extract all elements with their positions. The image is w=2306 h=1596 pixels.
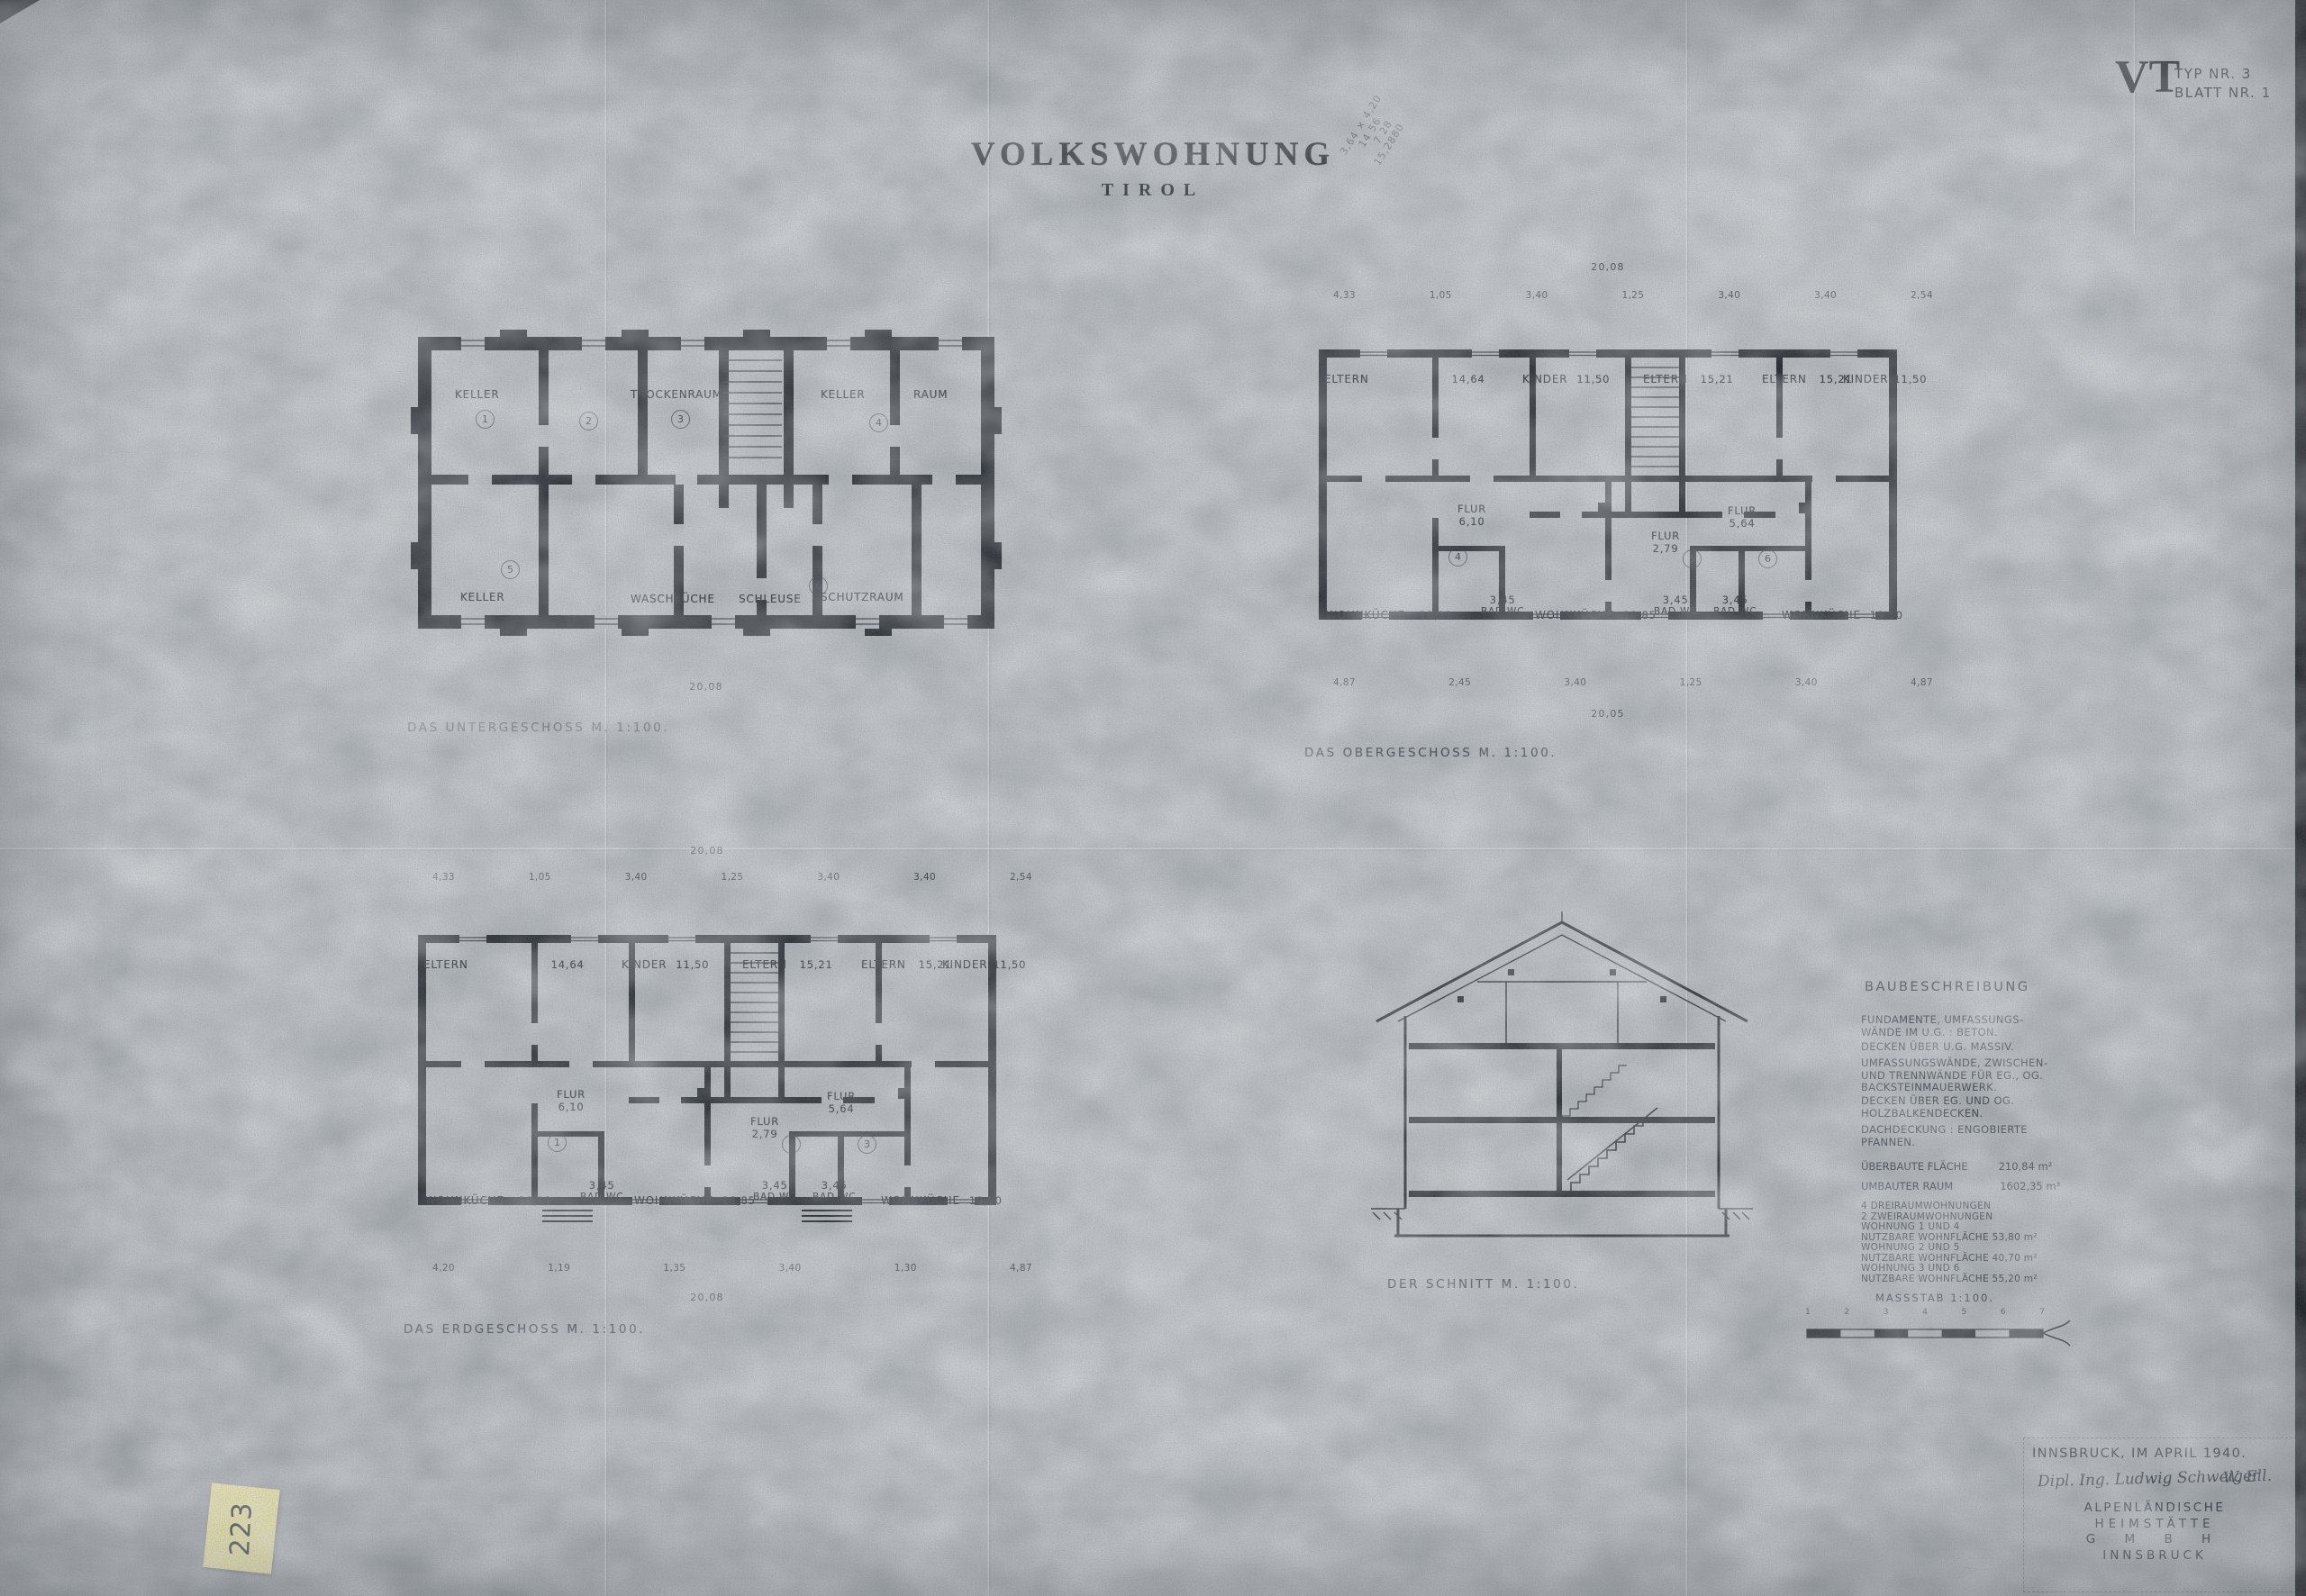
dimension-label: 1,25: [721, 872, 743, 883]
scale-tick: 3: [1884, 1308, 1889, 1317]
room-label: RAUM: [913, 388, 948, 401]
sheet-meta: TYP NR. 3 BLATT NR. 1: [2174, 65, 2272, 103]
unit-number-badge: 6: [809, 576, 828, 595]
dimension-label: 3,40: [1526, 290, 1548, 301]
room-label: KINDER11,50: [622, 958, 709, 971]
dimension-total: 20,05: [1308, 708, 1908, 720]
dimension-label: 1,19: [548, 1263, 570, 1274]
apartment-line: WOHNUNG 3 UND 6: [1861, 1264, 2038, 1274]
room-label: KINDER11,50: [942, 958, 1026, 971]
room-label: 3,45BAD WC: [1481, 594, 1524, 618]
fold-crease: [604, 0, 608, 1596]
room-label: SCHLEUSE: [739, 593, 802, 605]
scan-corner-artifact: [0, 0, 40, 23]
dimension-row: 4,87 2,45 3,40 1,25 3,40 4,87: [1308, 677, 1958, 688]
dimension-label: 3,40: [1564, 677, 1586, 688]
room-label: WOHNKÜCHE18,85: [634, 1194, 756, 1207]
scale-tick: 2: [1844, 1308, 1849, 1317]
sheet-code: VT: [2115, 50, 2180, 104]
baubeschreibung-title: BAUBESCHREIBUNG: [1865, 980, 2029, 994]
dimension-label: 3,40: [1795, 677, 1818, 688]
baubeschreibung-item: DECKEN ÜBER EG. UND OG. HOLZBALKENDECKEN…: [1861, 1095, 2014, 1120]
room-label: WOHNKÜCHE19,50: [881, 1194, 1003, 1207]
sheet-type-label: TYP NR. 3: [2174, 65, 2272, 84]
company-line: INNSBRUCK: [2056, 1548, 2254, 1564]
dimension-label: 3,40: [1718, 290, 1740, 301]
company-name-block: ALPENLÄNDISCHE HEIMSTÄTTE G M B H INNSBR…: [2056, 1501, 2254, 1564]
fold-crease: [2133, 0, 2137, 234]
enclosed-volume-row: UMBAUTER RAUM1602,35 m³: [1861, 1180, 2060, 1192]
scale-tick: 7: [2039, 1308, 2045, 1317]
scale-tick: 1: [1805, 1308, 1811, 1317]
enclosed-volume-label: UMBAUTER RAUM: [1861, 1180, 1953, 1192]
fold-crease: [1685, 0, 1689, 1596]
room-label: WOHNKÜCHE18,85: [1535, 609, 1657, 621]
dimension-label: 4,20: [432, 1263, 455, 1274]
dimension-label: 3,40: [779, 1263, 802, 1274]
apartment-line: NUTZBARE WOHNFLÄCHE 55,20 m²: [1861, 1274, 2038, 1285]
room-label: WASCHKÜCHE: [631, 593, 715, 605]
dimension-label: 4,33: [432, 872, 455, 883]
floor-slabs: [1409, 969, 1715, 1197]
entrance-steps: [542, 1211, 852, 1221]
unit-number-badge: 5: [1683, 549, 1702, 568]
room-label: SCHUTZRAUM: [821, 591, 904, 603]
dimension-total: 20,08: [1308, 261, 1908, 273]
room-label: ELTERN14,64: [1324, 373, 1485, 385]
dimension-row: 4,20 1,19 1,35 3,40 1,30 4,87: [407, 1263, 1058, 1274]
unit-number-badge: 5: [501, 560, 520, 579]
hall-label: FLUR2,79: [1651, 530, 1680, 555]
date-line: INNSBRUCK, IM APRIL 1940.: [2032, 1446, 2247, 1461]
apartment-summary: 4 DREIRAUMWOHNUNGEN 2 ZWEIRAUMWOHNUNGEN …: [1861, 1202, 2038, 1284]
fold-crease: [987, 0, 991, 1596]
dimension-label: 1,25: [1621, 290, 1644, 301]
walls: [411, 330, 1002, 636]
unit-number-badge: 1: [548, 1133, 567, 1152]
dimension-label: 4,87: [1010, 1263, 1032, 1274]
dimension-label: 1,25: [1680, 677, 1702, 688]
hall-label: FLUR6,10: [1457, 503, 1486, 528]
built-area-row: ÜBERBAUTE FLÄCHE210,84 m²: [1861, 1160, 2052, 1173]
scale-tick: 4: [1922, 1308, 1928, 1317]
scale-tick: 6: [2001, 1308, 2006, 1317]
unit-number-badge: 3: [671, 410, 690, 429]
room-label: KINDER11,50: [1843, 373, 1927, 385]
room-label: KELLER: [455, 388, 500, 401]
dimension-label: 3,40: [817, 872, 840, 883]
dimension-label: 3,40: [913, 872, 936, 883]
hall-label: FLUR5,64: [827, 1090, 856, 1115]
unit-number-badge: 2: [579, 412, 598, 431]
stair-section: [1562, 1066, 1657, 1191]
room-label: 3,45BAD WC: [813, 1180, 856, 1203]
dimension-label: 1,05: [1430, 290, 1452, 301]
dimension-label: 4,87: [1333, 677, 1356, 688]
dimension-row: 4,33 1,05 3,40 1,25 3,40 3,40 2,54: [407, 872, 1058, 883]
page-title: VOLKSWOHNUNG: [955, 135, 1351, 174]
walls: [1319, 349, 1897, 620]
hall-label: FLUR6,10: [557, 1088, 586, 1113]
built-area-label: ÜBERBAUTE FLÄCHE: [1861, 1160, 1968, 1173]
dimension-row: 4,33 1,05 3,40 1,25 3,40 3,40 2,54: [1308, 290, 1958, 301]
baubeschreibung-item: FUNDAMENTE, UMFASSUNGS- WÄNDE IM U.G. : …: [1861, 1014, 2024, 1038]
room-label: KELLER: [821, 388, 866, 401]
dimension-total: 20,08: [405, 681, 1007, 693]
baubeschreibung-item: DECKEN ÜBER U.G. MASSIV.: [1861, 1041, 2014, 1054]
dimension-label: 1,05: [529, 872, 551, 883]
plan-caption: DAS OBERGESCHOSS M. 1:100.: [1304, 746, 1557, 760]
room-label: WOHNKÜCHE18,11: [425, 1194, 552, 1207]
unit-number-badge: 3: [858, 1135, 876, 1154]
dimension-label: 1,35: [663, 1263, 685, 1274]
company-line: G M B H: [2056, 1532, 2254, 1548]
walls: [418, 935, 996, 1205]
dimension-label: 3,40: [625, 872, 648, 883]
room-label: ELTERN15,21: [861, 958, 952, 971]
unit-number-badge: 2: [782, 1135, 801, 1154]
room-label: ELTERN15,21: [1643, 373, 1734, 385]
room-label: ELTERN15,21: [1762, 373, 1853, 385]
apartment-line: 4 DREIRAUMWOHNUNGEN: [1861, 1202, 2038, 1212]
scale-caption: MASSSTAB 1:100.: [1875, 1292, 1994, 1304]
apartment-line: WOHNUNG 1 UND 4: [1861, 1222, 2038, 1233]
room-label: KINDER11,50: [1522, 373, 1610, 385]
dimension-label: 2,54: [1010, 872, 1032, 883]
enclosed-volume-value: 1602,35 m³: [2000, 1180, 2060, 1192]
dimension-label: 2,54: [1911, 290, 1933, 301]
room-label: 3,45BAD WC: [1713, 594, 1757, 618]
unit-number-badge: 6: [1758, 549, 1777, 568]
room-label: WOHNKÜCHE19,50: [1782, 609, 1903, 621]
sticky-note-number: 223: [224, 1501, 259, 1556]
fold-crease: [0, 848, 2306, 851]
section-drawing: [1371, 910, 1753, 1252]
scan-vignette: [0, 0, 2306, 1596]
scale-tick: 5: [1962, 1308, 1967, 1317]
room-label: ELTERN14,64: [423, 958, 585, 971]
scale-tick-numbers: 1 2 3 4 5 6 7: [1805, 1308, 2045, 1317]
baubeschreibung-item: UMFASSUNGSWÄNDE, ZWISCHEN- UND TRENNWÄND…: [1861, 1057, 2047, 1094]
plan-caption: DER SCHNITT M. 1:100.: [1387, 1277, 1579, 1292]
sticky-note: 223: [203, 1483, 279, 1573]
graphic-scale-bar: [1805, 1320, 2075, 1353]
room-label: 3,45BAD WC: [1654, 594, 1697, 618]
unit-number-badge: 4: [869, 413, 888, 432]
company-line: ALPENLÄNDISCHE: [2056, 1501, 2254, 1517]
room-label: 3,45BAD WC: [753, 1180, 796, 1203]
room-label: TROCKENRAUM: [631, 388, 722, 401]
dimension-total: 20,08: [407, 1292, 1007, 1303]
hall-label: FLUR2,79: [750, 1115, 779, 1140]
room-label: KELLER: [460, 591, 505, 603]
scan-edge-strip: [2295, 0, 2306, 1596]
hall-label: FLUR5,64: [1728, 504, 1757, 530]
sheet-number-label: BLATT NR. 1: [2174, 84, 2272, 103]
room-label: WOHNKÜCHE18,11: [1326, 609, 1453, 621]
dimension-label: 4,87: [1911, 677, 1933, 688]
plan-caption: DAS ERDGESCHOSS M. 1:100.: [404, 1322, 645, 1337]
dimension-label: 2,45: [1448, 677, 1471, 688]
unit-number-badge: 1: [476, 410, 495, 429]
built-area-value: 210,84 m²: [1999, 1160, 2053, 1173]
company-line: HEIMSTÄTTE: [2056, 1517, 2254, 1533]
unit-number-badge: 4: [1448, 548, 1467, 567]
plan-caption: DAS UNTERGESCHOSS M. 1:100.: [407, 721, 669, 735]
baubeschreibung-item: DACHDECKUNG : ENGOBIERTE PFANNEN.: [1861, 1124, 2028, 1148]
room-label: 3,45BAD WC: [580, 1180, 623, 1203]
dimension-label: 4,33: [1333, 290, 1356, 301]
signature-initials: W. Ell.: [2223, 1467, 2273, 1488]
room-label: ELTERN15,21: [742, 958, 833, 971]
dimension-label: 1,30: [894, 1263, 917, 1274]
paper-grain-overlay: [0, 0, 2306, 1596]
apartment-line: WOHNUNG 2 UND 5: [1861, 1243, 2038, 1254]
dimension-label: 3,40: [1814, 290, 1837, 301]
dimension-total: 20,08: [407, 845, 1007, 857]
page-subtitle: TIROL: [955, 180, 1351, 201]
